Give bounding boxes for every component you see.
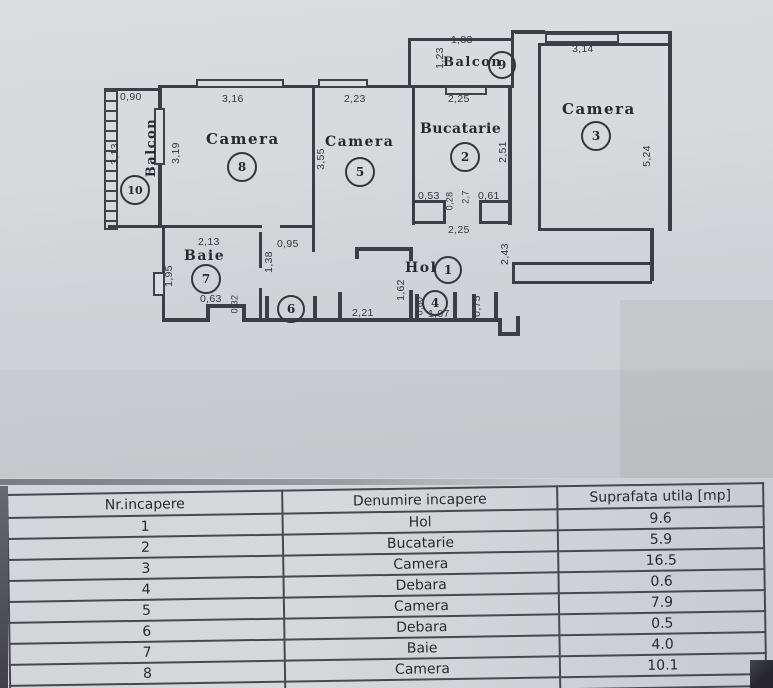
wall (355, 247, 413, 251)
room-label-camera8: Camera (206, 130, 280, 148)
room-number-badge: 7 (191, 264, 221, 294)
room-number-badge: 10 (120, 175, 150, 205)
dim-label: 1,95 (163, 265, 175, 287)
dim-label: 1,07 (428, 308, 450, 320)
room-label-hol1: Hol (405, 260, 437, 276)
window (318, 79, 368, 88)
room-number-badge: 6 (277, 295, 305, 323)
dim-label: 2,7 (461, 190, 471, 203)
room-label-bucatarie2: Bucatarie (420, 121, 501, 137)
room-number-badge: 8 (227, 152, 257, 182)
wall (538, 43, 541, 230)
wall (409, 247, 413, 261)
dim-label: 0,63 (200, 293, 222, 305)
dim-label: 2,21 (352, 307, 374, 319)
dim-label: 0,60 (414, 297, 424, 316)
dim-label: 2,43 (499, 243, 511, 265)
room-number-badge: 1 (434, 256, 462, 284)
wall (280, 225, 315, 228)
room-label-baie7: Baie (184, 248, 225, 264)
wall (158, 88, 162, 110)
wall (259, 232, 262, 268)
wall (338, 292, 342, 322)
wall (265, 296, 269, 322)
wall (453, 292, 457, 320)
wall (415, 221, 446, 224)
wall (162, 318, 210, 322)
dim-label: 0,61 (478, 190, 500, 202)
room-label-balcon10: Balcon (144, 118, 159, 177)
dim-label: 2,51 (497, 141, 509, 163)
wall (538, 228, 654, 231)
dim-label: 0,95 (277, 238, 299, 250)
dim-label: 0,90 (120, 91, 142, 103)
photo-shading (0, 370, 773, 478)
dim-label: 3,16 (222, 93, 244, 105)
dim-label: 3,13 (109, 143, 121, 165)
dim-label: 0,28 (444, 192, 454, 211)
wall (412, 85, 415, 225)
wall (650, 231, 654, 281)
wall (512, 262, 515, 284)
dim-label: 0,53 (418, 190, 440, 202)
scan-dark-corner (750, 660, 773, 688)
room-number-badge: 2 (450, 142, 480, 172)
room-number-badge: 3 (581, 121, 611, 151)
scanned-floorplan-page: Balcon 9 Camera 3 Balcon 10 Camera 8 Cam… (0, 0, 773, 688)
room-number-badge: 9 (488, 51, 516, 79)
floorplan-photo: Balcon 9 Camera 3 Balcon 10 Camera 8 Cam… (0, 0, 773, 478)
scan-shadow (0, 479, 580, 485)
wall (162, 225, 262, 228)
room-label-camera3: Camera (562, 100, 636, 118)
dim-label: 1,83 (451, 34, 473, 46)
dim-label: 1,23 (434, 47, 446, 69)
wall (538, 43, 672, 46)
dim-label: 2,23 (344, 93, 366, 105)
dim-label: 1,62 (395, 279, 407, 301)
room-number-badge: 5 (345, 157, 375, 187)
areas-table: Nr.incapere Denumire incapere Suprafata … (6, 482, 766, 688)
room-label-camera5: Camera (325, 134, 394, 150)
dim-label: 3,19 (170, 142, 182, 164)
wall (355, 247, 359, 259)
dim-label: 5,24 (641, 145, 653, 167)
wall (668, 31, 672, 231)
dim-label: 1,38 (263, 251, 275, 273)
dim-label: 3,14 (572, 43, 594, 55)
wall (242, 318, 312, 322)
window (545, 33, 619, 43)
dim-label: 0,32 (229, 295, 239, 314)
scan-dark-edge (0, 486, 8, 688)
header-area: Suprafata utila [mp] (557, 483, 763, 509)
dim-label: 2,13 (198, 236, 220, 248)
dim-label: 2,25 (448, 224, 470, 236)
window (196, 79, 284, 88)
wall (479, 221, 509, 224)
wall (516, 316, 520, 336)
wall (409, 290, 413, 320)
wall (313, 296, 317, 322)
dim-label: 2,25 (448, 93, 470, 105)
photo-shading (620, 300, 773, 478)
wall (259, 288, 262, 322)
wall (512, 281, 652, 284)
wall (512, 262, 652, 265)
wall (494, 292, 498, 320)
dim-label: 0,75 (471, 295, 483, 317)
wall (408, 38, 411, 88)
dim-label: 3,55 (315, 148, 327, 170)
